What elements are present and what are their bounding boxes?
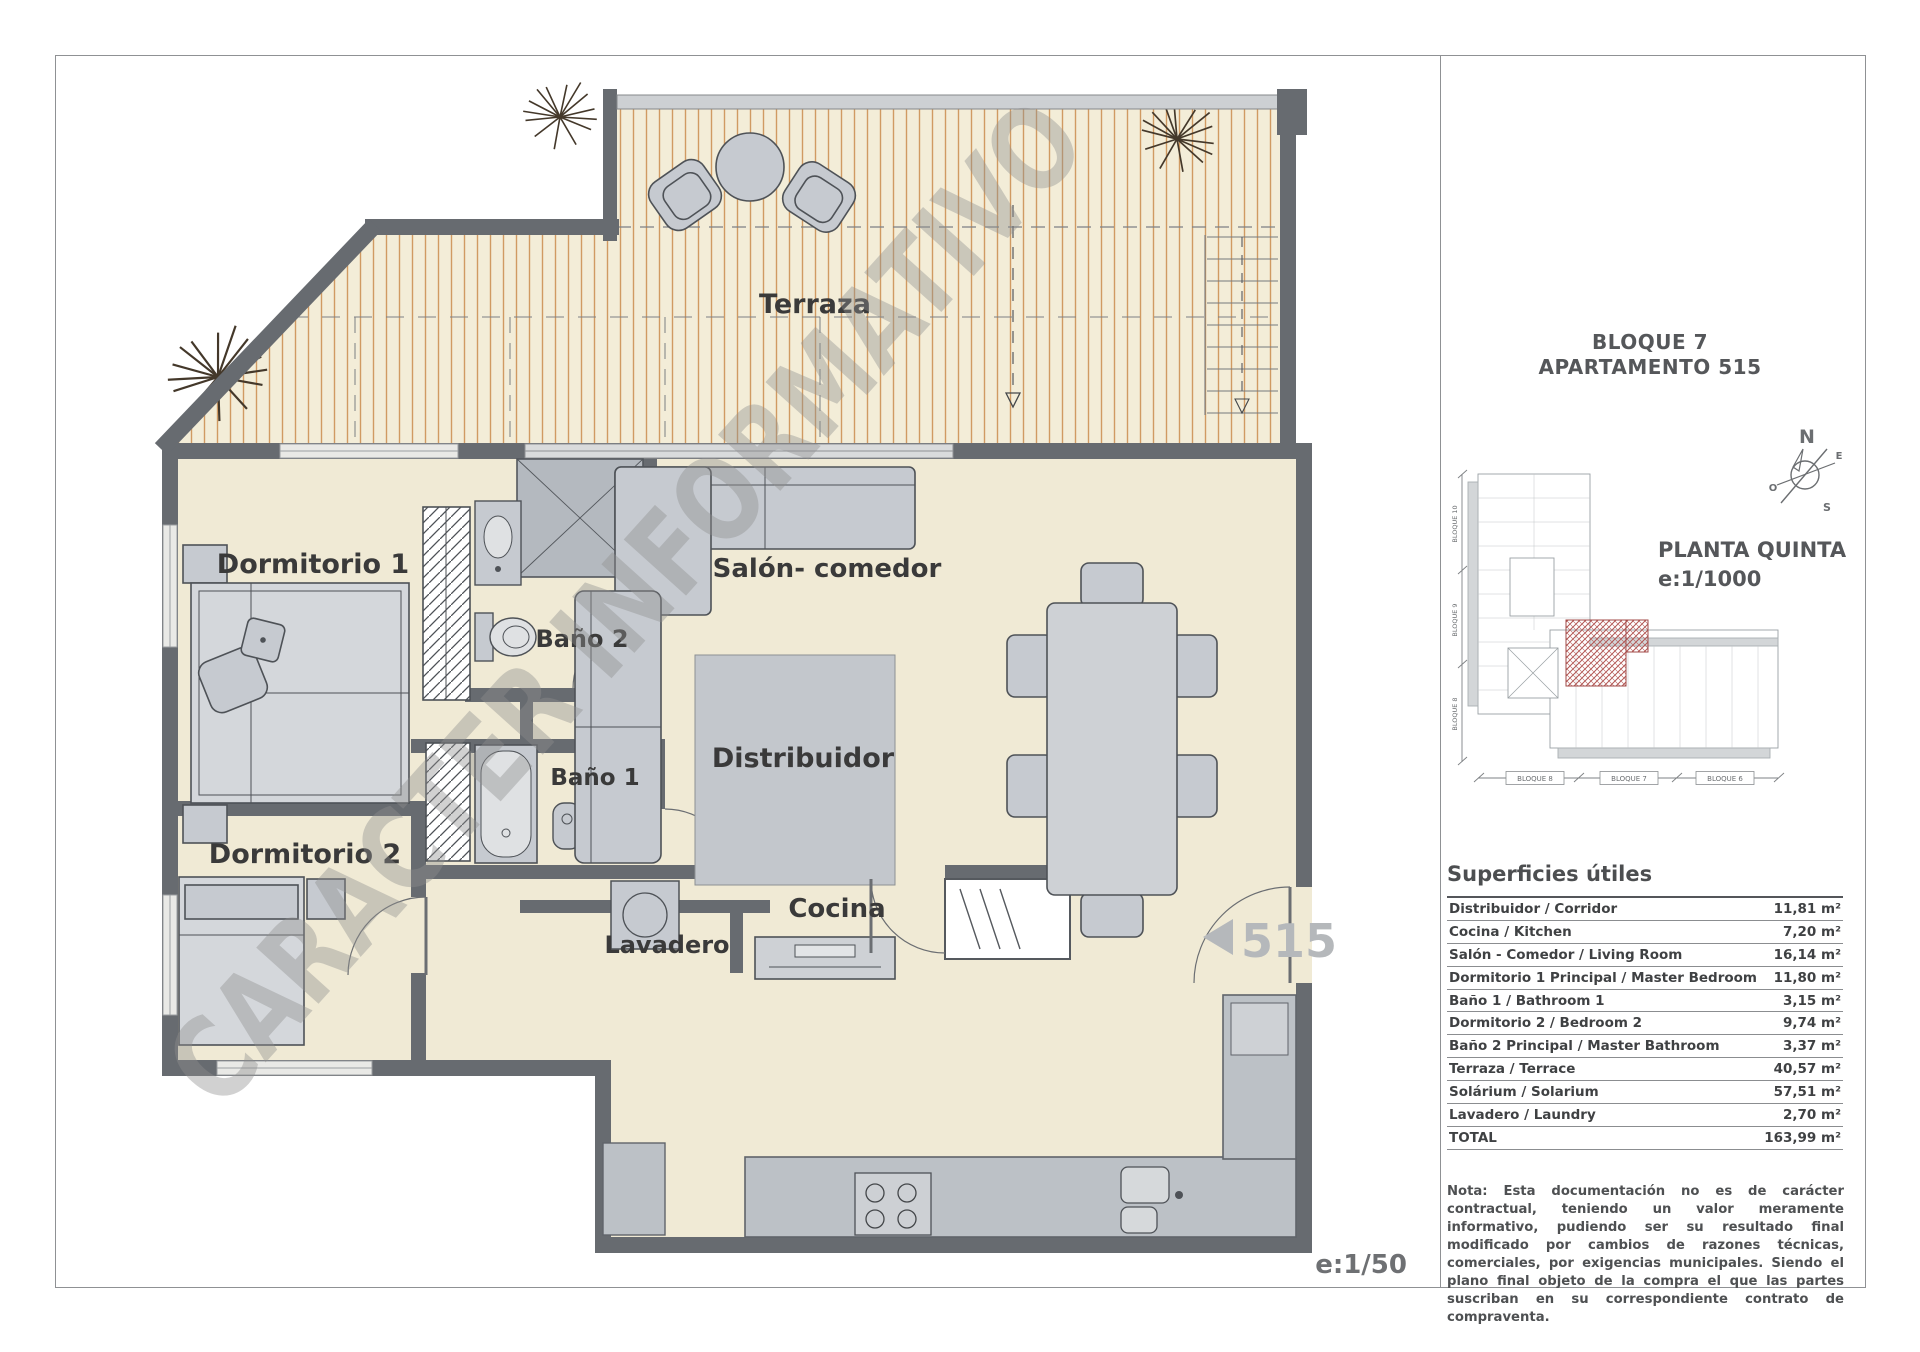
siteplan-block-label: BLOQUE 9 [1451,603,1459,636]
label-cocina: Cocina [788,894,885,924]
row-value: 3,37 m² [1783,1038,1843,1054]
row-value: 163,99 m² [1764,1130,1843,1146]
row-label: Dormitorio 2 / Bedroom 2 [1447,1015,1642,1031]
label-dormitorio1: Dormitorio 1 [217,549,409,580]
apartment-title-number: APARTAMENTO 515 [1500,355,1800,380]
table-row: Dormitorio 2 / Bedroom 29,74 m² [1447,1012,1843,1035]
row-label: Salón - Comedor / Living Room [1447,947,1682,963]
table-row: Salón - Comedor / Living Room16,14 m² [1447,944,1843,967]
apartment-title-block: BLOQUE 7 [1500,330,1800,355]
row-value: 11,81 m² [1774,901,1843,917]
areas-table: Distribuidor / Corridor11,81 m² Cocina /… [1447,896,1843,1150]
site-key-plan: BLOQUE 8 BLOQUE 7 BLOQUE 6 BLOQUE 10 BLO… [1450,462,1795,797]
row-label: Dormitorio 1 Principal / Master Bedroom [1447,970,1757,986]
row-value: 2,70 m² [1783,1107,1843,1123]
row-value: 9,74 m² [1783,1015,1843,1031]
label-distribuidor: Distribuidor [712,743,895,774]
terrace-railing [617,95,1280,109]
plan-sheet: 515 Terraza Dormitorio 1 Baño 2 Salón- c… [0,0,1920,1352]
svg-text:E: E [1836,451,1843,462]
table-row: Cocina / Kitchen7,20 m² [1447,921,1843,944]
table-row: Dormitorio 1 Principal / Master Bedroom1… [1447,967,1843,990]
row-label: Baño 1 / Bathroom 1 [1447,993,1605,1009]
row-label: Distribuidor / Corridor [1447,901,1617,917]
siteplan-block-label: BLOQUE 8 [1517,775,1553,783]
row-value: 40,57 m² [1774,1061,1843,1077]
site-plan-scale: e:1/1000 [1658,567,1761,591]
svg-text:S: S [1823,501,1831,514]
plan-scale-label: e:1/50 [1315,1250,1407,1280]
apartment-title: BLOQUE 7 APARTAMENTO 515 [1500,330,1800,380]
siteplan-block-label: BLOQUE 10 [1451,505,1459,542]
table-row: Solárium / Solarium57,51 m² [1447,1081,1843,1104]
row-label: Cocina / Kitchen [1447,924,1572,940]
site-plan-title: PLANTA QUINTA [1658,538,1846,562]
table-row: Baño 2 Principal / Master Bathroom3,37 m… [1447,1035,1843,1058]
svg-text:N: N [1799,426,1815,448]
row-label: Lavadero / Laundry [1447,1107,1596,1123]
row-value: 16,14 m² [1774,947,1843,963]
row-label: Terraza / Terrace [1447,1061,1575,1077]
row-label: TOTAL [1447,1130,1497,1146]
unit-number: 515 [1241,914,1337,968]
panel-divider [1440,55,1441,1287]
disclaimer-note: Nota: Esta documentación no es de caráct… [1447,1183,1844,1327]
table-row: Lavadero / Laundry2,70 m² [1447,1104,1843,1127]
siteplan-block-label: BLOQUE 8 [1451,697,1459,730]
siteplan-block-label: BLOQUE 7 [1611,775,1647,783]
row-label: Baño 2 Principal / Master Bathroom [1447,1038,1720,1054]
siteplan-left-dimension [1458,470,1467,765]
areas-table-title: Superficies útiles [1447,862,1652,886]
siteplan-block-label: BLOQUE 6 [1707,775,1743,783]
label-lavadero: Lavadero [604,931,729,959]
row-label: Solárium / Solarium [1447,1084,1599,1100]
palm-icon [523,83,597,150]
row-value: 3,15 m² [1783,993,1843,1009]
floor-plan-drawing: 515 Terraza Dormitorio 1 Baño 2 Salón- c… [55,55,1440,1287]
row-value: 7,20 m² [1783,924,1843,940]
table-row: Baño 1 / Bathroom 13,15 m² [1447,990,1843,1013]
table-row-total: TOTAL163,99 m² [1447,1127,1843,1150]
table-row: Terraza / Terrace40,57 m² [1447,1058,1843,1081]
row-value: 57,51 m² [1774,1084,1843,1100]
terrace-wall [603,89,617,241]
table-row: Distribuidor / Corridor11,81 m² [1447,898,1843,921]
row-value: 11,80 m² [1774,970,1843,986]
